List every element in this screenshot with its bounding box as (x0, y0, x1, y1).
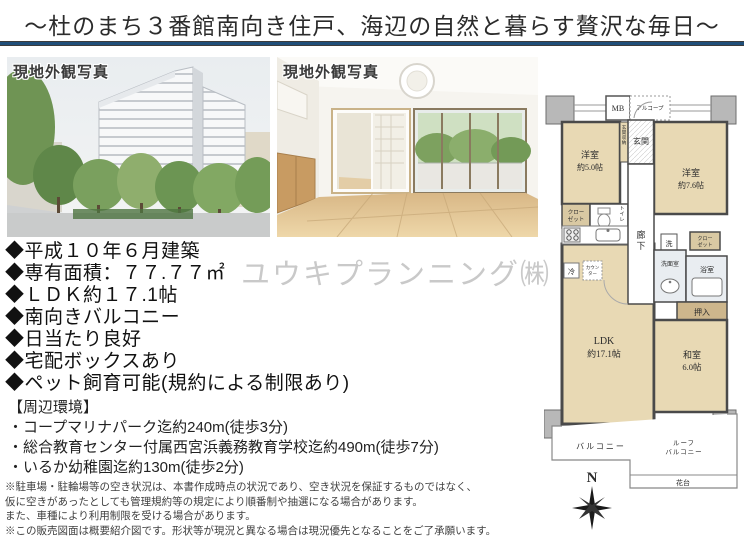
roof-balcony-label: ルーフ (673, 439, 695, 447)
ldk-size-label: 約17.1帖 (587, 348, 621, 359)
disclaimer-line: ※この販売図面は概要紹介図です。形状等が現況と異なる場合は現況優先となることをご… (5, 524, 496, 539)
washroom-label: 洗面室 (661, 260, 679, 268)
closet-1-label: クロー (568, 209, 585, 216)
page-title: 〜杜のまち３番館南向き住戸、海辺の自然と暮らす贅沢な毎日〜 (0, 7, 744, 41)
feature-item: ◆専有面積：７７.７７㎡ (5, 263, 350, 285)
closet-1 (562, 204, 590, 228)
environment-item: ・いるか幼稚園迄約130m(徒歩2分) (8, 458, 439, 478)
block-top-left (546, 96, 574, 124)
feature-item: ◆ペット飼育可能(規約による制限あり) (5, 373, 350, 395)
washbasin-faucet-icon (669, 281, 672, 284)
floorplan: MB アルコープ 洋室 約5.0帖 玄関収納 玄関 洋室 約7.6帖 クロー ゼ… (544, 58, 744, 542)
room-west-7-name: 洋室 (682, 167, 700, 178)
balcony-label: バルコニー (576, 442, 626, 451)
flower-stand-label: 花台 (676, 478, 690, 487)
disclaimer-section: ※駐車場・駐輪場等の空き状況は、本書作成時点の状況であり、空き状況を保証するもの… (5, 480, 496, 538)
feature-list: ◆平成１０年６月建築 ◆専有面積：７７.７７㎡ ◆ＬＤＫ約１７.1帖 ◆南向きバ… (5, 241, 350, 395)
feature-item: ◆日当たり良好 (5, 329, 350, 351)
toilet-tank-icon (598, 208, 610, 214)
entrance-storage-label: 玄関収納 (622, 124, 627, 146)
closet-1-label: ゼット (568, 215, 585, 223)
environment-section: 【周辺環境】 ・コープマリナパーク迄約240m(徒歩3分) ・総合教育センター付… (8, 398, 439, 478)
entrance-label: 玄関 (633, 136, 649, 146)
compass-n-label: N (587, 470, 598, 486)
ldk-label: LDK (594, 336, 615, 347)
exterior-photo-illustration (7, 57, 270, 237)
title-divider-rule (0, 41, 744, 46)
roof-balcony-label: バルコニー (665, 448, 702, 456)
interior-photo: 現地外観写真 (277, 57, 538, 237)
disclaimer-line: 仮に空きがあったとしても管理規約等の規定により順番制や抽選になる場合があります。 (5, 495, 496, 510)
counter-label: カウン (586, 264, 600, 271)
closet-2-label: クロー (697, 236, 712, 242)
tatami-size-label: 6.0帖 (682, 362, 702, 372)
environment-item: ・総合教育センター付属西宮浜義務教育学校迄約490m(徒歩7分) (8, 438, 439, 458)
fridge-label: 冷 (568, 267, 575, 276)
bathroom-label: 浴室 (700, 265, 714, 274)
tatami-label: 和室 (683, 349, 701, 360)
exterior-photo: 現地外観写真 (7, 57, 270, 237)
room-west-5-size: 約5.0帖 (577, 162, 603, 172)
floorplan-drawing: MB アルコープ 洋室 約5.0帖 玄関収納 玄関 洋室 約7.6帖 クロー ゼ… (544, 58, 744, 542)
disclaimer-line: また、車種により利用制限を受ける場合があります。 (5, 509, 496, 524)
closet-2-label: ゼット (697, 242, 712, 249)
feature-item: ◆平成１０年６月建築 (5, 241, 350, 263)
washer-label: 洗 (666, 239, 673, 248)
block-top-right (711, 96, 736, 124)
exterior-photo-label: 現地外観写真 (13, 61, 109, 82)
room-west-5-name: 洋室 (581, 149, 599, 160)
interior-photo-illustration (277, 57, 538, 237)
interior-photo-label: 現地外観写真 (283, 61, 379, 82)
environment-heading: 【周辺環境】 (8, 398, 439, 418)
feature-item: ◆ＬＤＫ約１７.1帖 (5, 285, 350, 307)
feature-item: ◆南向きバルコニー (5, 307, 350, 329)
flyer-page: 〜杜のまち３番館南向き住戸、海辺の自然と暮らす贅沢な毎日〜 (0, 0, 744, 542)
oshiire-label: 押入 (694, 307, 710, 317)
feature-item: ◆宅配ボックスあり (5, 351, 350, 373)
environment-item: ・コープマリナパーク迄約240m(徒歩3分) (8, 418, 439, 438)
washroom (654, 250, 686, 302)
counter-label: ター (588, 270, 597, 277)
meter-box-label: MB (612, 104, 624, 113)
balcony-outline (552, 414, 737, 488)
faucet-icon (607, 229, 610, 232)
bathtub-icon (692, 278, 722, 296)
room-west-7-size: 約7.6帖 (678, 180, 704, 190)
toilet-label: トイレ (619, 206, 624, 223)
disclaimer-line: ※駐車場・駐輪場等の空き状況は、本書作成時点の状況であり、空き状況を保証するもの… (5, 480, 496, 495)
